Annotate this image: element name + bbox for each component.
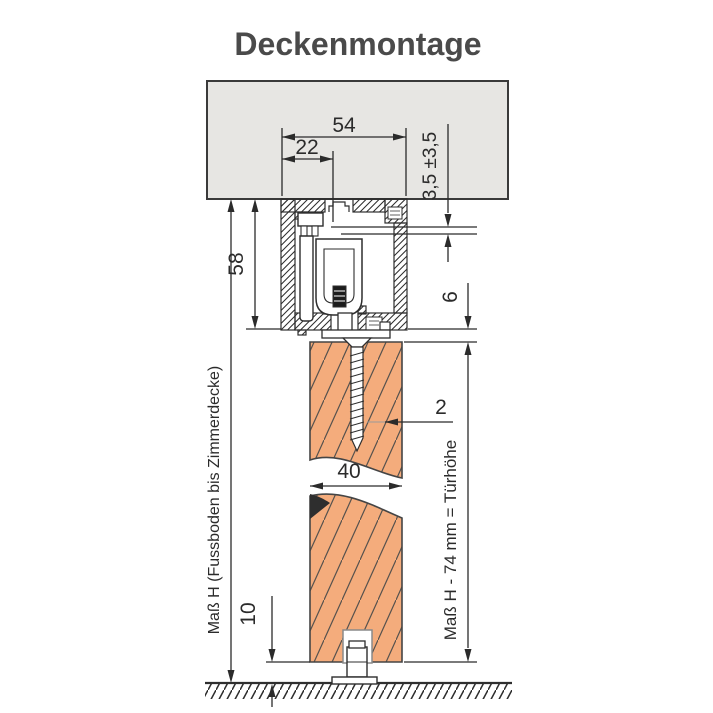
label-screw-callout: 2 [435, 396, 447, 419]
arrow-right-icon [389, 483, 402, 490]
track-top-wall-right [353, 199, 385, 212]
technical-drawing-page: Deckenmontage [0, 0, 713, 713]
track-clip-channel [388, 207, 402, 219]
ceiling-block [207, 81, 508, 199]
label-height-right: Maß H - 74 mm = Türhöhe [441, 440, 460, 640]
wood-screw [350, 347, 364, 451]
label-height-left: Maß H (Fussboden bis Zimmerdecke) [206, 366, 223, 635]
carriage-arm [300, 236, 313, 321]
floor [205, 683, 512, 699]
arrow-up-icon [465, 342, 472, 355]
arrow-up-icon [252, 199, 259, 212]
label-adjustment-range: 3,5 ±3,5 [420, 132, 441, 201]
arrow-left-icon [310, 483, 323, 490]
hanger-plate [322, 330, 390, 338]
arrow-down-icon [269, 649, 276, 662]
track-bottom-tab [298, 330, 306, 335]
hanger-bolt-head [298, 213, 323, 226]
arrow-down-icon [465, 649, 472, 662]
floor-guide-cap [349, 641, 365, 648]
hanger-plate-step [380, 322, 390, 330]
arrow-up-icon [445, 234, 452, 247]
label-bolt-offset: 22 [295, 136, 318, 159]
ceiling-mount-diagram: Deckenmontage [0, 0, 713, 713]
arrow-down-icon [465, 316, 472, 329]
label-track-width: 54 [332, 114, 356, 137]
arrow-up-icon [228, 199, 235, 212]
label-track-height: 58 [225, 252, 248, 275]
label-door-thickness: 40 [337, 460, 360, 483]
arrow-down-icon [445, 214, 452, 227]
arrow-down-icon [228, 670, 235, 683]
dim-door-thickness [310, 483, 402, 490]
dim-58-lines [246, 212, 281, 329]
arrow-down-icon [252, 316, 259, 329]
hanger-bolt-shaft-1 [301, 226, 307, 236]
label-floor-gap: 10 [237, 602, 260, 625]
track-left-wall [281, 199, 295, 330]
dim-track-height [246, 199, 281, 329]
hanger-bolt-shaft-2 [312, 226, 318, 236]
hanger-strap [338, 313, 352, 332]
floor-hatch [205, 684, 512, 699]
page-title: Deckenmontage [234, 26, 481, 62]
label-gap-track-door: 6 [439, 291, 462, 303]
track-screw-channel [329, 202, 349, 212]
floor-guide-base-plate [332, 677, 377, 684]
track-right-wall [394, 223, 407, 313]
